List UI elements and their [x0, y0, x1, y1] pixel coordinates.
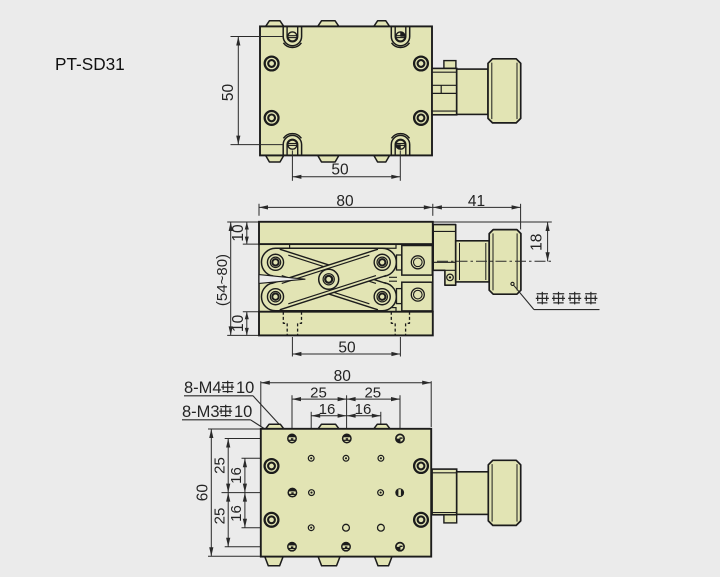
svg-text:16: 16	[228, 467, 245, 484]
svg-text:8-M4: 8-M4	[184, 379, 222, 397]
svg-text:10: 10	[230, 314, 247, 332]
svg-text:8-M3: 8-M3	[182, 403, 220, 421]
svg-text:41: 41	[468, 193, 485, 210]
svg-text:50: 50	[331, 161, 349, 178]
svg-text:16: 16	[355, 401, 372, 418]
svg-text:60: 60	[195, 484, 212, 502]
svg-text:18: 18	[529, 234, 546, 251]
svg-text:80: 80	[334, 368, 352, 385]
svg-text:16: 16	[319, 401, 336, 418]
svg-text:(54~80): (54~80)	[214, 254, 231, 306]
svg-text:10: 10	[234, 403, 252, 421]
svg-text:80: 80	[336, 193, 354, 210]
svg-text:50: 50	[220, 84, 237, 102]
svg-text:PT-SD31: PT-SD31	[55, 54, 125, 74]
svg-text:25: 25	[211, 457, 228, 474]
svg-text:25: 25	[310, 385, 327, 402]
svg-text:50: 50	[338, 339, 356, 356]
svg-text:25: 25	[364, 385, 381, 402]
svg-text:16: 16	[228, 505, 245, 522]
svg-text:25: 25	[211, 508, 228, 525]
svg-text:10: 10	[230, 224, 247, 242]
svg-text:10: 10	[236, 379, 254, 397]
